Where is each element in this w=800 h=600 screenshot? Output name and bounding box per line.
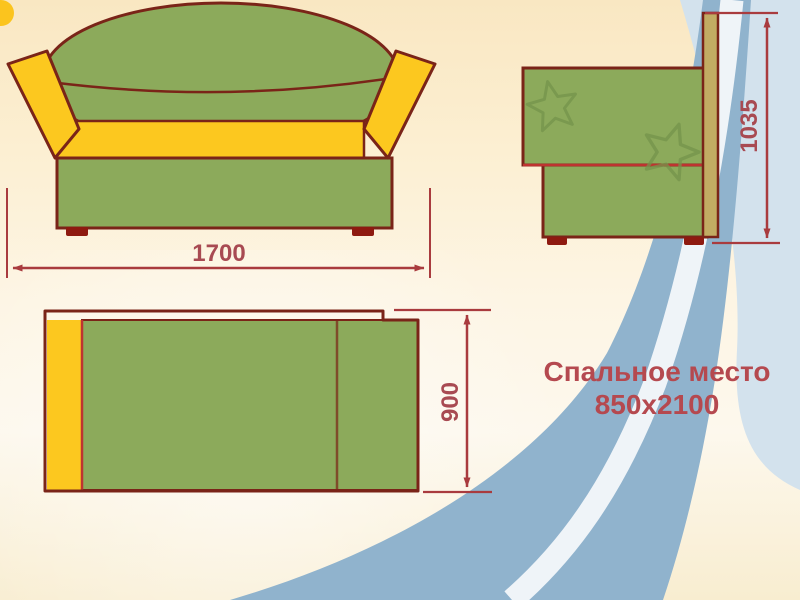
height-dimension-label: 1035 (736, 99, 763, 152)
backrest-panel (703, 13, 718, 237)
base-side (543, 165, 707, 237)
note-line-2: 850x2100 (595, 389, 720, 420)
seat-front-band (56, 121, 364, 158)
seat-side (523, 68, 707, 165)
base-front (57, 158, 392, 228)
right-foot-front (352, 227, 374, 236)
diagram-svg: 1700 1035 (0, 0, 800, 600)
note-line-1: Спальное место (543, 356, 770, 387)
width-dimension-label: 1700 (192, 240, 245, 267)
armrest-top-strip (47, 320, 82, 490)
mattress-top (82, 320, 418, 490)
sofa-dimension-diagram: 1700 1035 (0, 0, 800, 600)
depth-dimension-label: 900 (437, 382, 464, 422)
left-foot-front (66, 227, 88, 236)
right-foot-side (684, 237, 704, 245)
left-foot-side (547, 237, 567, 245)
